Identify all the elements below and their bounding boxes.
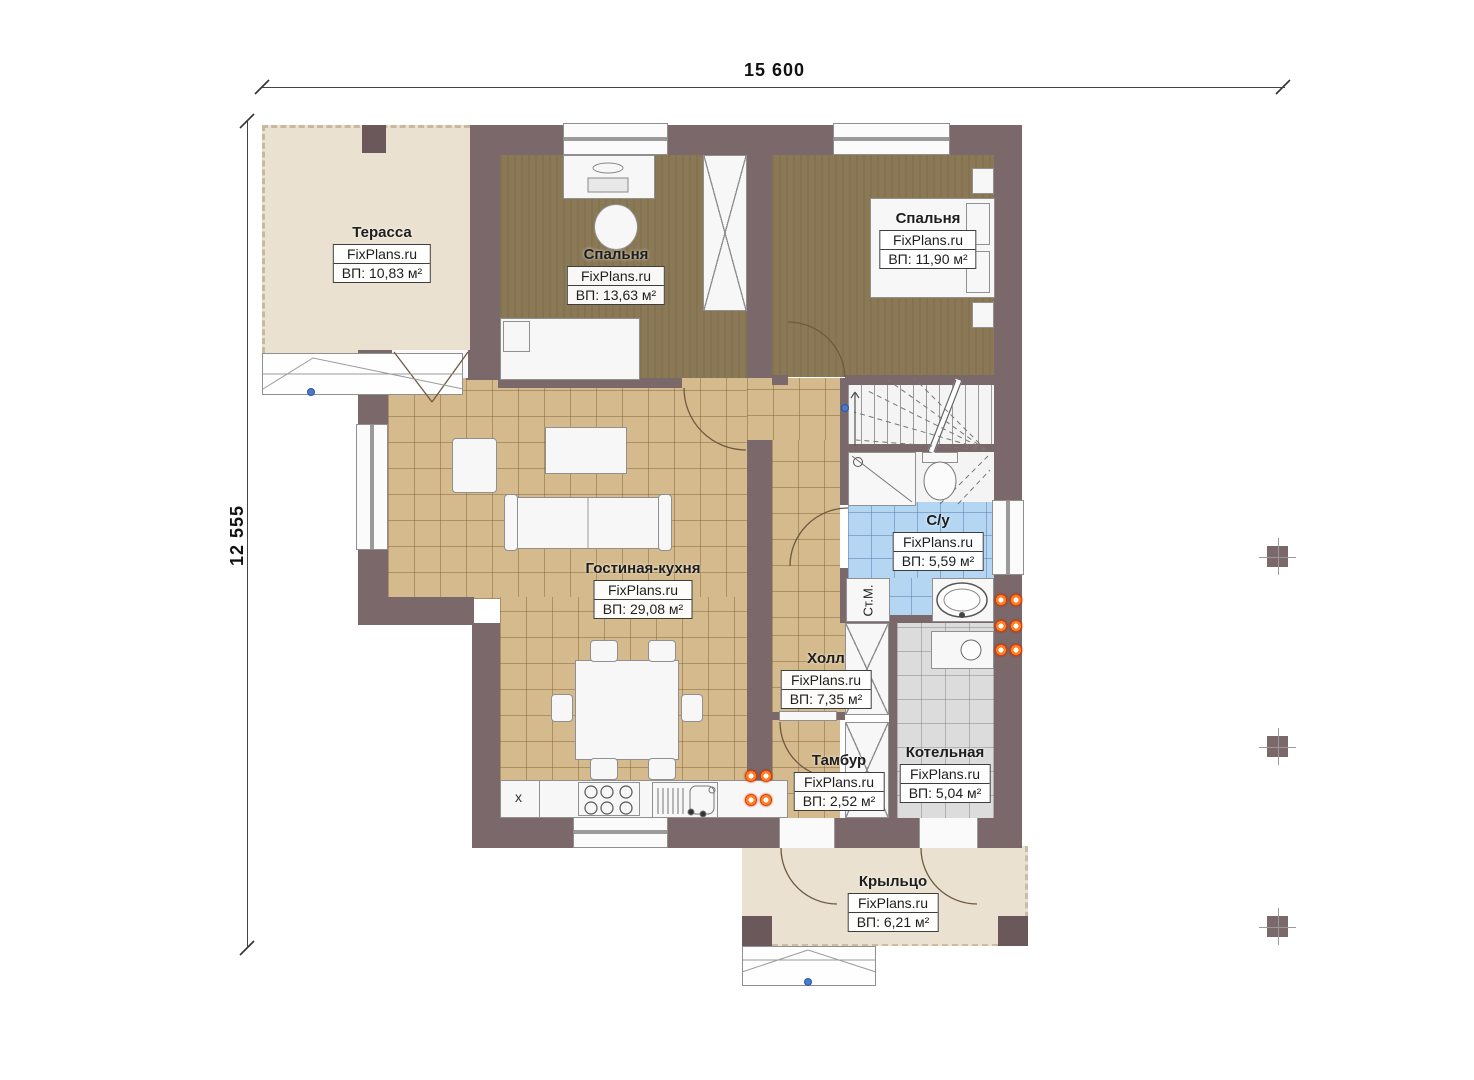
dining-chair-6 xyxy=(681,694,703,722)
dining-chair-4 xyxy=(648,758,676,780)
radiator-icon-4 xyxy=(995,620,1022,632)
room-label-bathroom: С/у FixPlans.ru ВП: 5,59 м² xyxy=(893,512,984,571)
terrace-steps xyxy=(262,353,463,395)
partition-corridor-bath-a xyxy=(840,452,848,505)
desk xyxy=(563,155,655,199)
marker-dot-stairs xyxy=(841,404,849,412)
brand-watermark: FixPlans.ru xyxy=(894,533,983,551)
room-name: Котельная xyxy=(900,744,991,761)
porch-pillar-right xyxy=(998,916,1028,946)
dining-table xyxy=(575,660,679,760)
room-label-living: Гостиная-кухня FixPlans.ru ВП: 29,08 м² xyxy=(586,560,701,619)
brand-watermark: FixPlans.ru xyxy=(880,231,975,249)
room-label-bedroom1: Спальня FixPlans.ru ВП: 13,63 м² xyxy=(567,246,665,305)
wall-bottom-a xyxy=(472,818,575,848)
terrace-pillar xyxy=(362,125,386,153)
room-name: Спальня xyxy=(567,246,665,263)
room-label-hall: Холл FixPlans.ru ВП: 7,35 м² xyxy=(781,650,872,709)
partition-stairs-bath xyxy=(845,444,994,452)
window-bedroom2 xyxy=(833,123,950,155)
desk-chair xyxy=(594,204,638,250)
room-name: Гостиная-кухня xyxy=(586,560,701,577)
room-area: ВП: 29,08 м² xyxy=(595,599,691,618)
room-label-vestibule: Тамбур FixPlans.ru ВП: 2,52 м² xyxy=(794,752,885,811)
partition-hall-vestibule-b xyxy=(836,712,845,720)
room-label-bedroom2: Спальня FixPlans.ru ВП: 11,90 м² xyxy=(879,210,976,269)
room-name: С/у xyxy=(893,512,984,529)
room-area: ВП: 13,63 м² xyxy=(568,285,664,304)
hall-corridor-floor xyxy=(747,378,840,442)
wall-right xyxy=(994,125,1022,848)
site-pillar-1 xyxy=(1267,546,1288,567)
washing-machine-label: Ст.М. xyxy=(860,585,875,617)
floorplan-canvas: x Ст.М. xyxy=(0,0,1474,1080)
dining-chair-2 xyxy=(648,640,676,662)
room-area: ВП: 10,83 м² xyxy=(334,263,430,282)
wardrobe-bedroom1 xyxy=(703,155,747,311)
hall-corridor-floor2 xyxy=(772,440,840,618)
stove xyxy=(578,782,640,816)
wall-bottom-c xyxy=(835,818,919,848)
wall-wing-bottom xyxy=(358,597,474,625)
sofa-armrest-left xyxy=(504,494,518,551)
brand-watermark: FixPlans.ru xyxy=(595,581,691,599)
site-pillar-2 xyxy=(1267,736,1288,757)
partition-bedroom2-a xyxy=(772,375,788,385)
kitchen-cabinet-mark: x xyxy=(515,789,522,805)
room-name: Спальня xyxy=(879,210,976,227)
room-area: ВП: 6,21 м² xyxy=(849,912,938,931)
wall-bottom-d xyxy=(978,818,1022,848)
radiator-icon-2 xyxy=(745,794,772,806)
dimension-width-label: 15 600 xyxy=(744,60,805,81)
window-living-left xyxy=(356,424,388,550)
bath-sink-counter xyxy=(932,578,994,622)
wall-terrace-boundary-b xyxy=(466,350,500,380)
dining-chair-5 xyxy=(551,694,573,722)
window-stairs-right xyxy=(992,500,1024,575)
partition-bedroom2-b xyxy=(845,375,994,385)
brand-watermark: FixPlans.ru xyxy=(568,267,664,285)
brand-watermark: FixPlans.ru xyxy=(782,671,871,689)
partition-corridor-stairs xyxy=(840,378,848,452)
coffee-table xyxy=(545,427,627,474)
window-kitchen xyxy=(573,816,668,848)
marker-dot-terrace xyxy=(307,388,315,396)
room-label-terrace: Терасса FixPlans.ru ВП: 10,83 м² xyxy=(333,224,431,283)
room-name: Терасса xyxy=(333,224,431,241)
wall-left-lower xyxy=(472,623,500,846)
wall-left-upper xyxy=(470,125,500,355)
brand-watermark: FixPlans.ru xyxy=(901,765,990,783)
site-pillar-3 xyxy=(1267,916,1288,937)
door-leaf-vestibule xyxy=(779,711,837,721)
marker-dot-porch xyxy=(804,978,812,986)
door-opening-vestibule-porch xyxy=(779,818,835,848)
sofa-armrest-right xyxy=(658,494,672,551)
room-name: Холл xyxy=(781,650,872,667)
radiator-icon-3 xyxy=(995,594,1022,606)
partition-hall-boiler xyxy=(889,623,897,818)
room-area: ВП: 11,90 м² xyxy=(880,249,975,268)
boiler-counter xyxy=(931,631,994,669)
partition-living-hall xyxy=(747,440,772,818)
brand-watermark: FixPlans.ru xyxy=(334,245,430,263)
dining-chair-1 xyxy=(590,640,618,662)
radiator-icon-1 xyxy=(745,770,772,782)
room-area: ВП: 2,52 м² xyxy=(795,791,884,810)
room-label-porch: Крыльцо FixPlans.ru ВП: 6,21 м² xyxy=(848,873,939,932)
room-name: Тамбур xyxy=(794,752,885,769)
nightstand-1 xyxy=(972,168,994,194)
kitchen-sink-unit xyxy=(652,782,718,818)
toilet-tank xyxy=(922,452,958,463)
dimension-line-top xyxy=(262,87,1285,88)
bed-single-pillow xyxy=(503,321,530,352)
door-opening-boiler-porch xyxy=(919,818,978,848)
shower xyxy=(848,452,916,506)
window-bedroom1 xyxy=(563,123,668,155)
sofa xyxy=(504,497,672,549)
nightstand-2 xyxy=(972,302,994,328)
porch-pillar-left xyxy=(742,916,772,946)
brand-watermark: FixPlans.ru xyxy=(849,894,938,912)
room-area: ВП: 5,59 м² xyxy=(894,551,983,570)
staircase xyxy=(848,378,994,444)
armchair xyxy=(452,438,497,493)
dimension-height-label: 12 555 xyxy=(227,505,248,566)
room-label-boiler: Котельная FixPlans.ru ВП: 5,04 м² xyxy=(900,744,991,803)
room-area: ВП: 7,35 м² xyxy=(782,689,871,708)
dining-chair-3 xyxy=(590,758,618,780)
bathroom-floor-blue2 xyxy=(888,578,934,620)
radiator-icon-5 xyxy=(995,644,1022,656)
partition-bedrooms xyxy=(747,155,772,378)
wall-bottom-b xyxy=(666,818,779,848)
room-name: Крыльцо xyxy=(848,873,939,890)
brand-watermark: FixPlans.ru xyxy=(795,773,884,791)
room-area: ВП: 5,04 м² xyxy=(901,783,990,802)
